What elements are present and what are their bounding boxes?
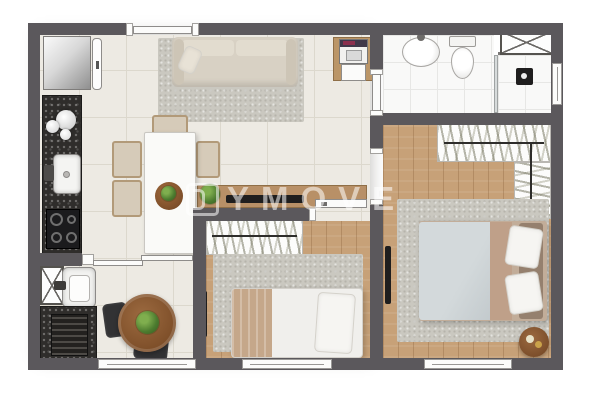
dining-chair-right [196, 141, 220, 178]
ymove-logo-icon [186, 183, 219, 216]
washer-door-open [341, 64, 366, 81]
kitchen-faucet [44, 165, 54, 181]
wall-service-divider [40, 253, 82, 266]
sink-drain [63, 171, 70, 178]
balcony-sliding-panel [93, 260, 143, 266]
watermark: YMOVE [186, 180, 406, 218]
master-door-jamb [370, 148, 383, 154]
sofa-back-cushion [236, 40, 288, 56]
wardrobe-rail [444, 142, 544, 144]
balcony-sliding-panel [141, 255, 193, 261]
master-side-table [519, 327, 549, 357]
bedroom2-window [242, 359, 332, 369]
bathroom-door-leaf [372, 74, 381, 111]
balcony-table-plant [136, 311, 159, 334]
shower-window [552, 63, 562, 105]
laundry-tub-basin [69, 275, 90, 302]
round-bowl-small [46, 120, 59, 133]
sofa-armrest [286, 39, 296, 85]
cabinet-handle [96, 61, 99, 69]
master-duvet [419, 222, 490, 320]
master-bed [419, 221, 547, 321]
shower-head-center [521, 73, 527, 79]
wardrobe-rail [212, 235, 297, 237]
wall-left [28, 23, 40, 370]
louver-appliance [51, 314, 88, 356]
laundry-tub [62, 267, 96, 308]
round-bowl-large [56, 110, 76, 130]
burner [67, 215, 76, 224]
kitchen-sink [53, 154, 81, 194]
washer-display [343, 41, 355, 45]
refrigerator [43, 36, 91, 90]
wall-bathroom-vertical [370, 33, 383, 73]
single-bed [231, 288, 363, 358]
tv-master [385, 246, 391, 304]
entry-door-jamb [126, 23, 133, 36]
burner [66, 232, 77, 243]
balcony-window [98, 359, 196, 369]
laundry-faucet [54, 281, 66, 290]
round-bowl-tiny [60, 129, 71, 140]
floorplan: YMOVE [0, 0, 600, 400]
wall-top-left [28, 23, 130, 35]
bathroom-basin [402, 37, 440, 67]
side-table-item [526, 335, 534, 343]
toilet-tank [449, 36, 476, 47]
burner [51, 232, 62, 243]
master-pillow [504, 271, 544, 316]
washer-drum [346, 50, 362, 61]
dining-chair-left [112, 180, 142, 217]
burner [50, 213, 63, 226]
watermark-text: YMOVE [227, 180, 406, 218]
side-table-item [535, 341, 542, 348]
master-window [424, 359, 512, 369]
fruit-bowl-greens [161, 186, 176, 201]
tall-cabinet [92, 38, 102, 90]
single-bed-blanket [232, 289, 272, 357]
entry-door-leaf [133, 26, 192, 34]
entry-door-jamb [192, 23, 199, 36]
shower-partition [494, 55, 498, 113]
master-pillow [504, 225, 544, 270]
wall-bedrooms-divider [370, 204, 383, 370]
shower-head [516, 68, 533, 85]
single-bed-pillow [314, 292, 356, 355]
wall-bathroom-bottom [377, 113, 551, 125]
wall-bedroom2-left [193, 208, 206, 370]
washer [339, 39, 368, 64]
sofa [172, 37, 298, 87]
cooktop [46, 209, 80, 249]
dining-chair-left [112, 141, 142, 178]
